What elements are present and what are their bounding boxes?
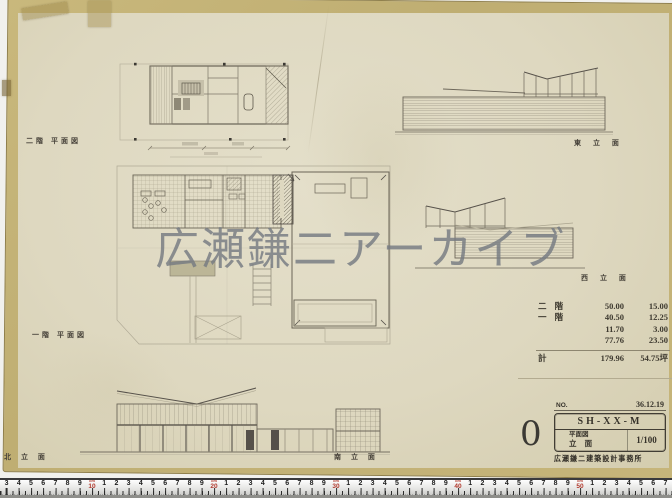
ruler-digit: 7 [297, 480, 301, 487]
row-sqm: 40.50 [572, 312, 624, 323]
ruler-digit: 8 [432, 480, 436, 487]
row-tsubo: 12.25 [624, 312, 668, 323]
ruler-digit: 7 [419, 480, 423, 487]
archive-number-stamp: 0 [520, 414, 542, 454]
ruler-digit: 2 [480, 480, 484, 487]
west-elevation-label: 西 立 面 [581, 273, 631, 283]
ruler-digit: 9 [566, 480, 570, 487]
title-block-header: NO. 36.12.19 [554, 399, 666, 411]
ruler-decade-label: cm40 [454, 479, 461, 490]
ruler-digit: 6 [407, 480, 411, 487]
ruler-digit: 8 [554, 480, 558, 487]
ruler-digit: 1 [590, 480, 594, 487]
total-tsubo: 54.75坪 [624, 353, 668, 364]
ruler-digit: 1 [346, 480, 350, 487]
row-sqm: 77.76 [572, 335, 624, 346]
ruler-digit: 1 [224, 480, 228, 487]
ruler-digit: 8 [310, 480, 314, 487]
drawing-type-cell: 平面図 立 面 [555, 430, 628, 451]
total-sqm: 179.96 [572, 353, 624, 364]
second-floor-plan-label: 二階 平面図 [26, 136, 81, 146]
ruler-decade-label: cm20 [210, 479, 217, 490]
ruler-digit: 9 [78, 480, 82, 487]
title-block-box: SH-XX-M 平面図 立 面 1/100 [554, 413, 666, 452]
ruler-digit: 3 [127, 480, 131, 487]
ruler-digit: 5 [517, 480, 521, 487]
ruler-digit: 7 [175, 480, 179, 487]
row-sqm: 11.70 [572, 324, 624, 335]
archive-watermark: 広瀬鎌二アーカイブ [155, 213, 566, 277]
title-block: NO. 36.12.19 SH-XX-M 平面図 立 面 1/100 広瀬鎌二建… [554, 399, 666, 464]
first-floor-plan-label: 一階 平面図 [32, 330, 87, 340]
table-row: 11.70 3.00 [538, 324, 672, 335]
ruler-digit: 5 [273, 480, 277, 487]
ruler-digit: 6 [285, 480, 289, 487]
ruler-digit: 4 [17, 480, 21, 487]
table-total-row: 計 179.96 54.75坪 [538, 353, 672, 364]
ruler-digit: 4 [261, 480, 265, 487]
south-elevation-label: 南 立 面 [334, 452, 379, 462]
ruler-digit: 3 [615, 480, 619, 487]
drawing-type-line2: 立 面 [569, 439, 627, 449]
row-tsubo: 3.00 [624, 324, 668, 335]
ruler-digit: 6 [41, 480, 45, 487]
ruler-digit: 2 [602, 480, 606, 487]
ruler-digit: 8 [66, 480, 70, 487]
scale-value: 1/100 [628, 430, 665, 451]
south-elevation-drawing [75, 381, 395, 461]
row-tsubo: 15.00 [624, 301, 668, 312]
table-row: 一 階 40.50 12.25 [538, 312, 672, 323]
ruler-digit: 7 [663, 480, 667, 487]
ruler-digit: 3 [249, 480, 253, 487]
ruler-digit: 9 [200, 480, 204, 487]
ruler-digit: 2 [236, 480, 240, 487]
ruler-digit: 4 [627, 480, 631, 487]
ruler-decade-label: cm30 [332, 479, 339, 490]
floor-area-table: 二 階 50.00 15.00 一 階 40.50 12.25 11.70 3.… [538, 301, 672, 364]
ruler-digit: 1 [102, 480, 106, 487]
row-label: 一 階 [538, 312, 572, 323]
row-label [538, 335, 572, 346]
table-underline [518, 378, 672, 379]
office-stamp: 広瀬鎌二建築設計事務所 [554, 454, 662, 464]
ruler-decade-label: cm50 [576, 479, 583, 490]
drawing-type-line1: 平面図 [569, 431, 627, 439]
ruler-digit: 9 [322, 480, 326, 487]
ruler-digit: 6 [163, 480, 167, 487]
tape-piece [2, 80, 11, 96]
ruler-digit: 3 [371, 480, 375, 487]
ruler-digit: 4 [505, 480, 509, 487]
table-row: 77.76 23.50 [538, 335, 672, 346]
ruler-digit: 6 [529, 480, 533, 487]
ruler-digit: 6 [651, 480, 655, 487]
ruler-digit: 5 [151, 480, 155, 487]
ruler-digit: 1 [468, 480, 472, 487]
ruler-digit: 8 [188, 480, 192, 487]
tape-piece [88, 1, 111, 27]
east-elevation-drawing [395, 58, 620, 140]
project-code: SH-XX-M [555, 414, 665, 430]
ruler-digit: 4 [139, 480, 143, 487]
row-sqm: 50.00 [572, 301, 624, 312]
table-row: 二 階 50.00 15.00 [538, 301, 672, 312]
ruler-digit: 2 [114, 480, 118, 487]
ruler-digit: 9 [444, 480, 448, 487]
ruler-digit: 5 [29, 480, 33, 487]
ruler-digit: 2 [358, 480, 362, 487]
ruler-digit: 3 [493, 480, 497, 487]
ruler-digit: 4 [383, 480, 387, 487]
row-label [538, 324, 572, 335]
ruler-digit: 7 [541, 480, 545, 487]
ruler-digit: 5 [395, 480, 399, 487]
date-value: 36.12.19 [636, 400, 664, 409]
ruler-digit: 5 [639, 480, 643, 487]
scanned-architectural-drawing: 二階 平面図 一階 平面図 東 立 面 西 立 面 南 立 面 北 立 面 二 … [0, 0, 672, 498]
ruler-digit: 3 [5, 480, 9, 487]
total-label: 計 [538, 353, 572, 364]
ruler-decade-label: cm10 [88, 479, 95, 490]
ruler-digit: 7 [53, 480, 57, 487]
north-elevation-label: 北 立 面 [4, 452, 49, 462]
east-elevation-label: 東 立 面 [574, 138, 624, 148]
row-label: 二 階 [538, 301, 572, 312]
number-label: NO. [556, 402, 568, 409]
row-tsubo: 23.50 [624, 335, 668, 346]
table-rule [536, 350, 670, 351]
